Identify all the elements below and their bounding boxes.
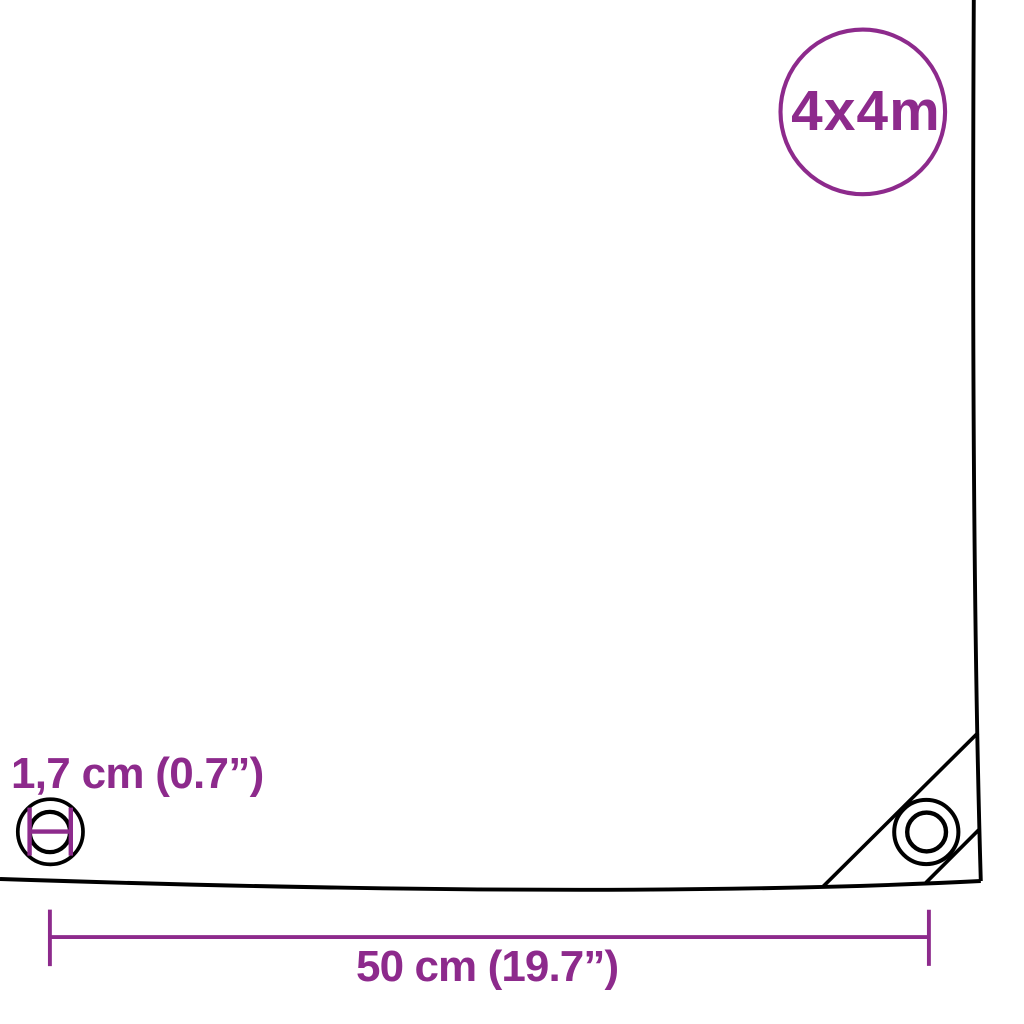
svg-text:50 cm (19.7”): 50 cm (19.7”) [356, 942, 618, 991]
svg-text:4x4m: 4x4m [791, 80, 941, 143]
svg-text:1,7 cm (0.7”): 1,7 cm (0.7”) [11, 749, 264, 798]
